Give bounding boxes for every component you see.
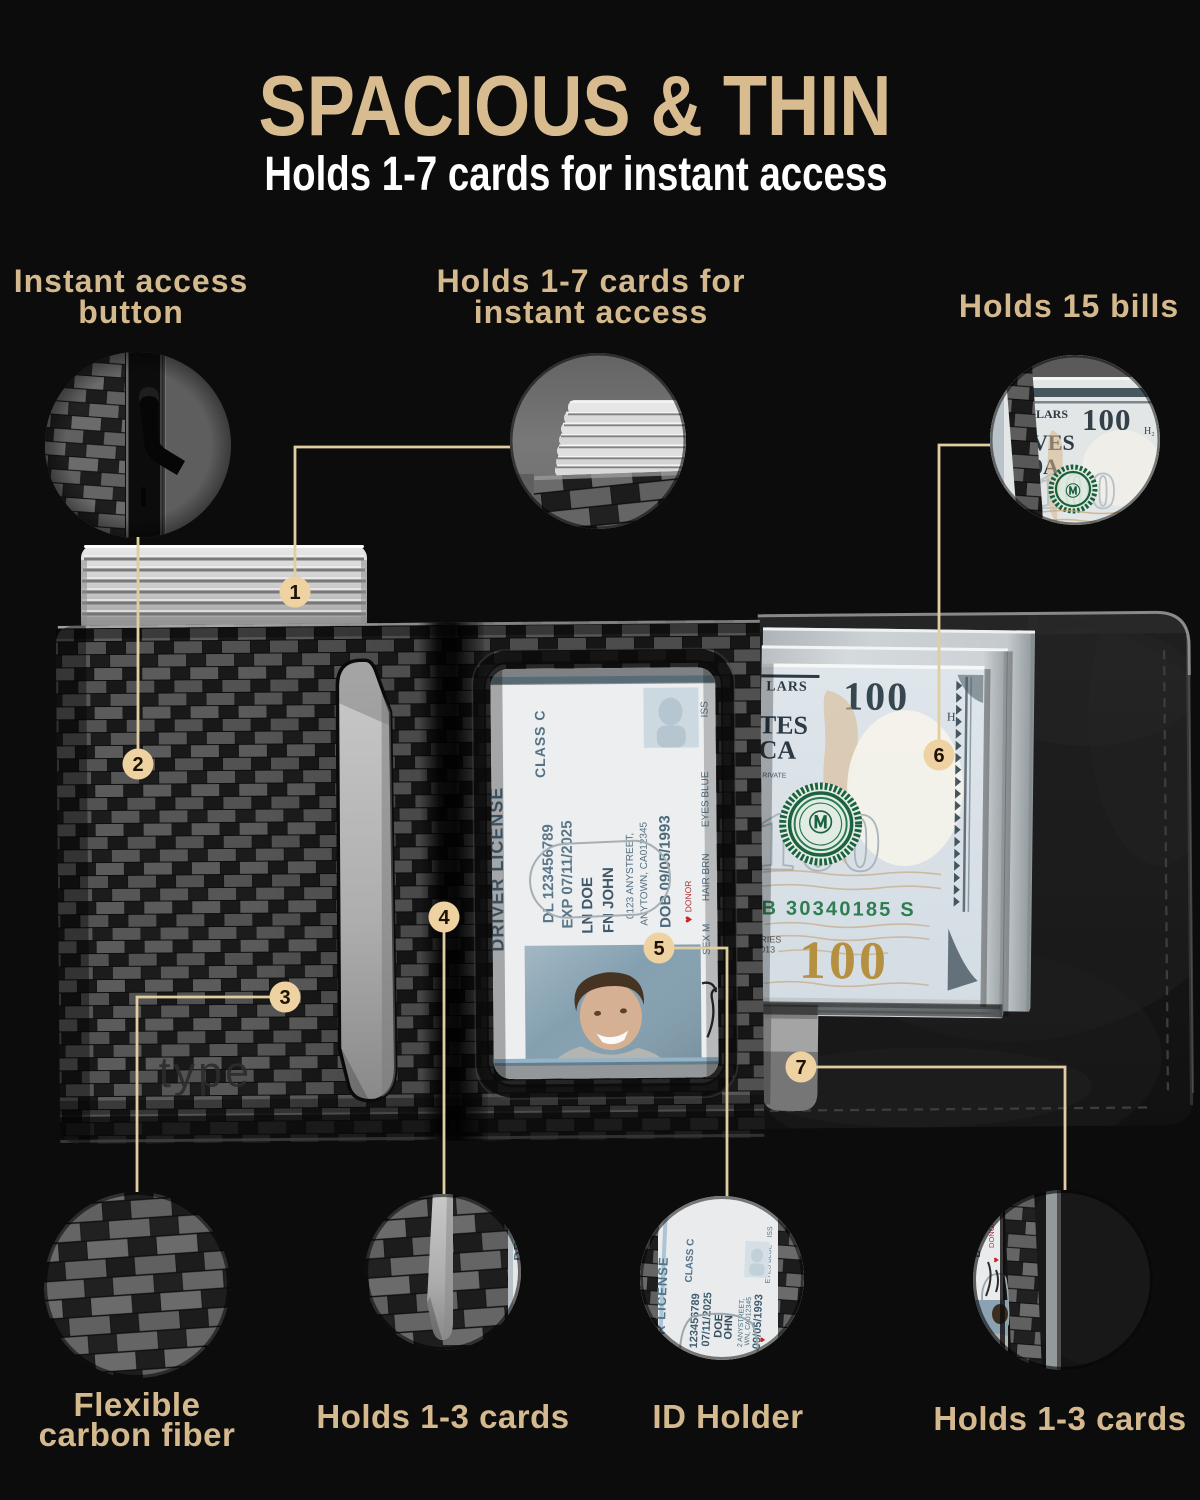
svg-text:H₂: H₂ — [1144, 426, 1155, 437]
svg-text:EXP 07/11/2025: EXP 07/11/2025 — [559, 820, 577, 928]
svg-text:LN DOE: LN DOE — [579, 877, 596, 934]
svg-text:type: type — [159, 1048, 253, 1097]
svg-text:LARS: LARS — [1036, 407, 1068, 421]
svg-text:ANYTOWN, CA012345: ANYTOWN, CA012345 — [639, 821, 651, 925]
svg-text:0123 ANYSTREET,: 0123 ANYSTREET, — [625, 833, 637, 919]
svg-text:DONOR: DONOR — [683, 881, 693, 913]
svg-text:CLASS C: CLASS C — [532, 709, 549, 778]
svg-text:100: 100 — [799, 930, 890, 991]
svg-text:♥: ♥ — [681, 916, 695, 923]
svg-text:3: 3 — [279, 987, 290, 1009]
svg-text:Ⓜ: Ⓜ — [1065, 482, 1080, 500]
svg-text:♥: ♥ — [991, 1257, 1001, 1262]
svg-text:Ⓜ: Ⓜ — [808, 809, 832, 837]
svg-text:B 30340185 S: B 30340185 S — [761, 897, 916, 921]
svg-text:5: 5 — [653, 938, 664, 960]
svg-text:2: 2 — [132, 754, 143, 776]
svg-text:7: 7 — [795, 1057, 806, 1079]
svg-text:CLASS C: CLASS C — [684, 1238, 697, 1282]
svg-text:OHN: OHN — [722, 1315, 735, 1340]
svg-text:6: 6 — [933, 745, 944, 767]
svg-text:1: 1 — [289, 582, 300, 604]
svg-text:DOB 09/05/1993: DOB 09/05/1993 — [656, 815, 674, 928]
svg-text:FN JOHN: FN JOHN — [600, 867, 618, 933]
svg-text:ISS: ISS — [767, 1226, 774, 1238]
svg-text:♥: ♥ — [757, 1337, 767, 1343]
svg-text:4: 4 — [438, 907, 450, 929]
